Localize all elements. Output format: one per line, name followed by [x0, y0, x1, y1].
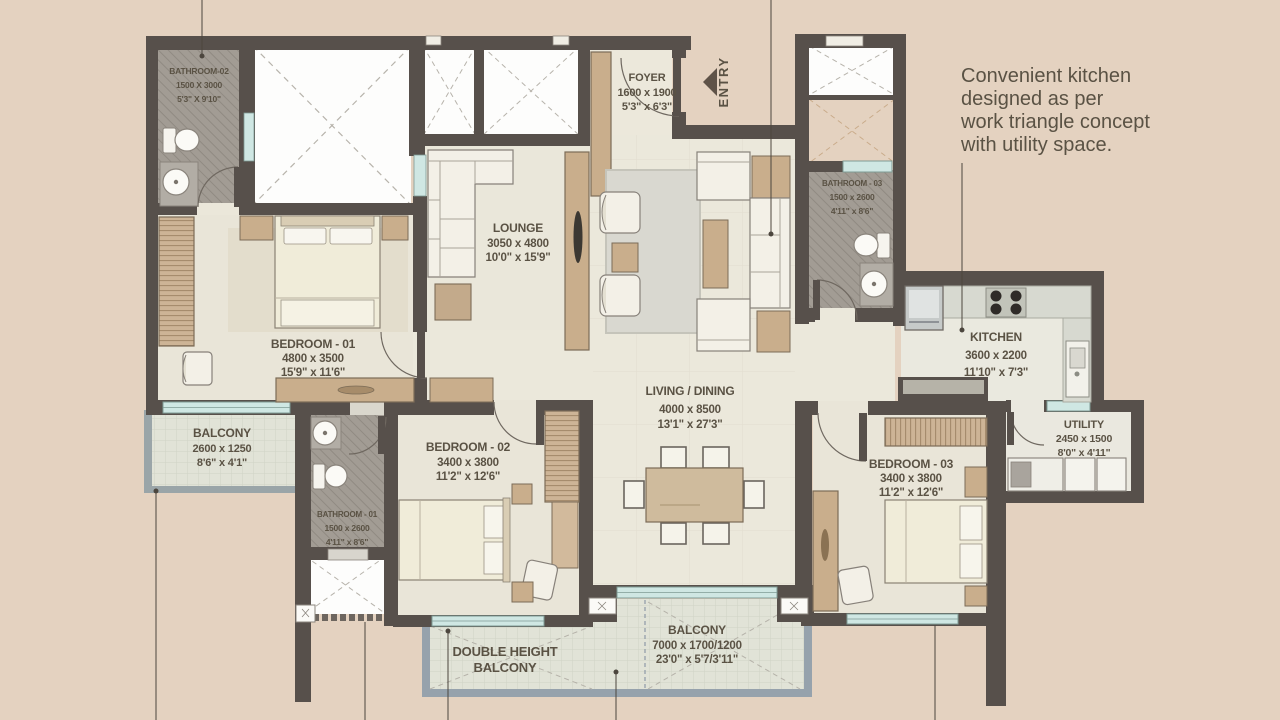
- svg-text:3400 x 3800: 3400 x 3800: [437, 457, 499, 469]
- svg-text:LIVING / DINING: LIVING / DINING: [645, 384, 734, 398]
- svg-text:LOUNGE: LOUNGE: [493, 221, 543, 235]
- svg-text:FOYER: FOYER: [629, 72, 666, 84]
- svg-text:BEDROOM - 03: BEDROOM - 03: [869, 457, 954, 471]
- svg-text:BALCONY: BALCONY: [193, 426, 251, 440]
- svg-text:5'3" x 6'3": 5'3" x 6'3": [622, 101, 672, 113]
- svg-text:4'11" x 8'6": 4'11" x 8'6": [831, 206, 873, 216]
- svg-text:BEDROOM - 01: BEDROOM - 01: [271, 337, 356, 351]
- svg-text:ENTRY: ENTRY: [716, 56, 731, 107]
- svg-text:10'0" x 15'9": 10'0" x 15'9": [486, 252, 551, 264]
- svg-text:Convenient kitchen: Convenient kitchen: [961, 65, 1131, 87]
- svg-text:BATHROOM-02: BATHROOM-02: [169, 66, 229, 76]
- svg-text:1500 x 2600: 1500 x 2600: [324, 523, 370, 533]
- svg-text:13'1" x 27'3": 13'1" x 27'3": [658, 419, 723, 431]
- svg-text:4000 x 8500: 4000 x 8500: [659, 404, 721, 416]
- svg-text:2600 x 1250: 2600 x 1250: [193, 443, 252, 455]
- svg-text:2450 x 1500: 2450 x 1500: [1056, 433, 1113, 445]
- svg-text:7000 x 1700/1200: 7000 x 1700/1200: [652, 640, 742, 652]
- svg-text:8'0" x 4'11": 8'0" x 4'11": [1058, 447, 1111, 459]
- svg-text:with utility space.: with utility space.: [960, 134, 1112, 156]
- svg-text:3050 x 4800: 3050 x 4800: [487, 238, 549, 250]
- svg-text:4800 x 3500: 4800 x 3500: [282, 353, 344, 365]
- svg-text:5'3" X 9'10": 5'3" X 9'10": [177, 94, 221, 104]
- svg-text:8'6" x 4'1": 8'6" x 4'1": [197, 457, 247, 469]
- svg-text:11'10" x 7'3": 11'10" x 7'3": [964, 367, 1028, 379]
- svg-text:11'2" x 12'6": 11'2" x 12'6": [879, 487, 943, 499]
- svg-text:23'0" x 5'7/3'11": 23'0" x 5'7/3'11": [656, 654, 738, 666]
- svg-text:1500 x 2600: 1500 x 2600: [829, 192, 875, 202]
- svg-text:UTILITY: UTILITY: [1064, 419, 1105, 431]
- svg-text:KITCHEN: KITCHEN: [970, 330, 1022, 344]
- svg-text:BATHROOM - 01: BATHROOM - 01: [317, 510, 378, 519]
- svg-text:designed as per: designed as per: [961, 88, 1104, 110]
- svg-text:1600 x 1900: 1600 x 1900: [618, 87, 677, 99]
- svg-text:11'2" x 12'6": 11'2" x 12'6": [436, 471, 500, 483]
- svg-text:BEDROOM - 02: BEDROOM - 02: [426, 440, 511, 454]
- svg-text:3400 x 3800: 3400 x 3800: [880, 473, 942, 485]
- svg-text:4'11" x 8'6": 4'11" x 8'6": [326, 537, 368, 547]
- svg-text:1500 X 3000: 1500 X 3000: [176, 80, 222, 90]
- svg-text:BATHROOM - 03: BATHROOM - 03: [822, 179, 883, 188]
- svg-text:3600 x 2200: 3600 x 2200: [965, 350, 1027, 362]
- svg-text:15'9" x 11'6": 15'9" x 11'6": [281, 367, 345, 379]
- svg-text:work triangle concept: work triangle concept: [960, 111, 1150, 133]
- svg-text:BALCONY: BALCONY: [474, 660, 537, 675]
- svg-text:DOUBLE HEIGHT: DOUBLE HEIGHT: [452, 644, 557, 659]
- svg-text:BALCONY: BALCONY: [668, 623, 726, 637]
